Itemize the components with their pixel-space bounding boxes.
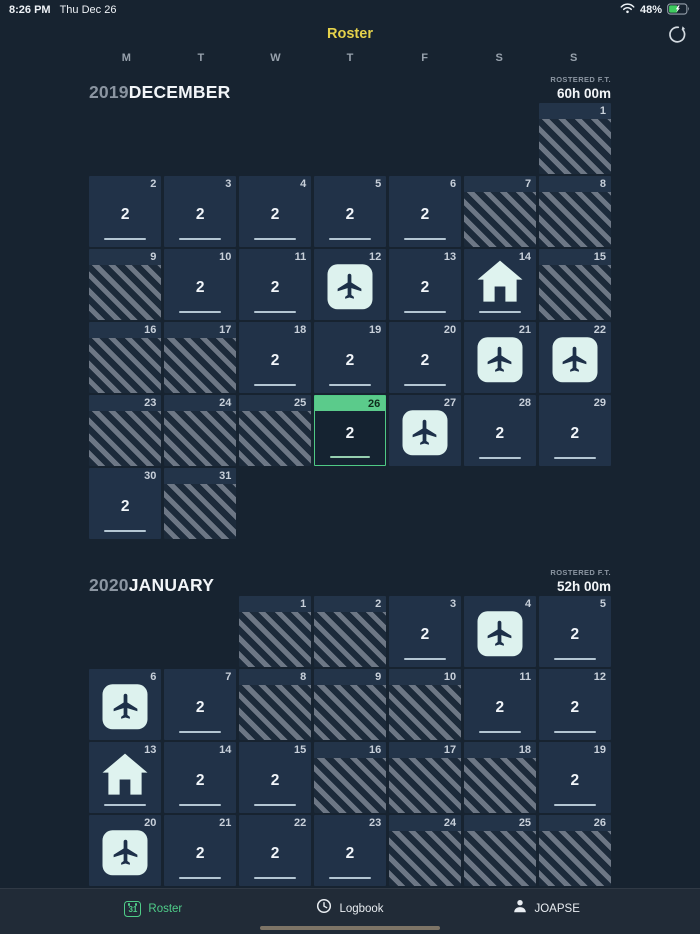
refresh-icon — [666, 23, 688, 45]
calendar-grid-january: 1232452672891011212213142152161718192202… — [89, 596, 611, 886]
day-number: 5 — [375, 178, 381, 190]
calendar-day-cell[interactable]: 20 — [89, 815, 161, 886]
day-number: 14 — [219, 744, 231, 756]
airplane-icon — [477, 611, 522, 656]
day-number: 7 — [225, 671, 231, 683]
duty-underline — [479, 731, 521, 733]
duty-underline — [104, 238, 146, 240]
calendar-day-cell[interactable]: 21 — [464, 322, 536, 393]
diagonal-stripes — [239, 411, 311, 466]
calendar-day-cell[interactable]: 1 — [539, 103, 611, 174]
calendar-day-cell[interactable]: 8 — [239, 669, 311, 740]
diagonal-stripes — [389, 831, 461, 886]
airplane-icon — [103, 684, 148, 729]
duty-underline — [179, 877, 221, 879]
day-number: 16 — [144, 324, 156, 336]
rostered-value: 52h 00m — [550, 580, 611, 594]
rostered-label: ROSTERED F.T. — [550, 569, 611, 577]
diagonal-stripes — [164, 484, 236, 539]
calendar-day-cell[interactable]: 14 — [464, 249, 536, 320]
calendar-day-cell[interactable]: 15 — [539, 249, 611, 320]
calendar-day-cell[interactable]: 24 — [389, 815, 461, 886]
day-number: 5 — [600, 598, 606, 610]
duty-underline — [479, 311, 521, 313]
duty-underline — [254, 384, 296, 386]
page-title: Roster — [0, 26, 700, 42]
day-number: 21 — [219, 817, 231, 829]
day-number: 17 — [444, 744, 456, 756]
day-number: 25 — [519, 817, 531, 829]
refresh-button[interactable] — [666, 23, 688, 45]
duty-underline — [254, 877, 296, 879]
day-number: 3 — [450, 598, 456, 610]
diagonal-stripes — [314, 612, 386, 667]
calendar-grid-december: 1223242526278910211212132141516171821922… — [89, 103, 611, 539]
day-number: 27 — [444, 397, 456, 409]
weekday-header: MTWTFSS — [89, 52, 611, 64]
diagonal-stripes — [239, 612, 311, 667]
day-number: 22 — [594, 324, 606, 336]
calendar-day-cell[interactable]: 4 — [464, 596, 536, 667]
diagonal-stripes — [464, 831, 536, 886]
duty-underline — [329, 238, 371, 240]
calendar-day-cell[interactable]: 13 — [89, 742, 161, 813]
weekday-label: T — [164, 52, 239, 64]
calendar-day-cell[interactable]: 22 — [89, 176, 161, 247]
diagonal-stripes — [539, 192, 611, 247]
day-number: 11 — [295, 251, 307, 263]
airplane-icon — [477, 337, 522, 382]
day-number: 13 — [444, 251, 456, 263]
day-number: 23 — [144, 397, 156, 409]
day-number: 23 — [369, 817, 381, 829]
day-number: 1 — [300, 598, 306, 610]
rostered-label: ROSTERED F.T. — [550, 76, 611, 84]
diagonal-stripes — [89, 411, 161, 466]
day-number: 17 — [219, 324, 231, 336]
day-number: 10 — [219, 251, 231, 263]
duty-underline — [179, 731, 221, 733]
weekday-label: W — [238, 52, 313, 64]
calendar-day-cell[interactable]: 192 — [539, 742, 611, 813]
airplane-icon — [402, 410, 447, 455]
diagonal-stripes — [539, 119, 611, 174]
diagonal-stripes — [464, 192, 536, 247]
day-number: 26 — [594, 817, 606, 829]
day-number: 1 — [600, 105, 606, 117]
weekday-label: M — [89, 52, 164, 64]
day-number: 6 — [150, 671, 156, 683]
calendar-day-cell[interactable]: 23 — [89, 395, 161, 466]
calendar-day-cell[interactable]: 22 — [539, 322, 611, 393]
airplane-icon — [552, 337, 597, 382]
calendar-day-cell[interactable]: 152 — [239, 742, 311, 813]
month-name: JANUARY — [129, 575, 214, 595]
month-year: 2020 — [89, 575, 129, 595]
duty-underline — [329, 384, 371, 386]
calendar-day-cell[interactable]: 182 — [239, 322, 311, 393]
day-number: 12 — [594, 671, 606, 683]
status-left: 8:26 PM Thu Dec 26 — [9, 4, 116, 16]
status-date: Thu Dec 26 — [60, 4, 117, 16]
day-number: 20 — [444, 324, 456, 336]
day-number: 16 — [369, 744, 381, 756]
duty-underline — [330, 456, 371, 458]
clock-icon — [316, 898, 332, 919]
calendar-day-cell[interactable]: 292 — [539, 395, 611, 466]
weekday-label: S — [462, 52, 537, 64]
status-time: 8:26 PM — [9, 4, 51, 16]
rostered-flight-time: ROSTERED F.T. 60h 00m — [550, 76, 611, 101]
calendar-day-cell[interactable]: 16 — [314, 742, 386, 813]
day-number: 11 — [519, 671, 531, 683]
day-number: 13 — [144, 744, 156, 756]
diagonal-stripes — [539, 831, 611, 886]
day-number: 8 — [600, 178, 606, 190]
status-right: 48% — [620, 3, 691, 18]
day-number: 12 — [369, 251, 381, 263]
home-icon — [102, 753, 149, 796]
duty-underline — [554, 731, 596, 733]
calendar-day-cell[interactable]: 9 — [314, 669, 386, 740]
month-title: 2020JANUARY — [89, 576, 214, 594]
month-section-january: 2020JANUARY ROSTERED F.T. 52h 00m 123245… — [89, 560, 611, 886]
calendar-day-cell[interactable]: 6 — [89, 669, 161, 740]
day-number: 14 — [519, 251, 531, 263]
day-number: 8 — [300, 671, 306, 683]
battery-icon — [667, 3, 691, 18]
calendar-day-cell[interactable]: 72 — [164, 669, 236, 740]
tab-roster[interactable]: 31 Roster — [55, 901, 252, 917]
calendar-day-cell[interactable]: 42 — [239, 176, 311, 247]
calendar-day-cell[interactable]: 26 — [539, 815, 611, 886]
duty-underline — [179, 311, 221, 313]
wifi-icon — [620, 3, 635, 17]
weekday-label: S — [536, 52, 611, 64]
calendar-day-cell[interactable]: 232 — [314, 815, 386, 886]
calendar-day-cell[interactable]: 27 — [389, 395, 461, 466]
home-icon — [476, 260, 523, 303]
duty-underline — [104, 804, 146, 806]
day-number: 15 — [594, 251, 606, 263]
calendar-day-cell[interactable]: 192 — [314, 322, 386, 393]
day-number: 7 — [525, 178, 531, 190]
calendar-day-cell[interactable]: 262 — [314, 395, 386, 466]
month-year: 2019 — [89, 82, 129, 102]
duty-underline — [554, 804, 596, 806]
battery-percent: 48% — [640, 4, 662, 16]
diagonal-stripes — [389, 758, 461, 813]
rostered-value: 60h 00m — [550, 87, 611, 101]
calendar-day-cell[interactable]: 112 — [464, 669, 536, 740]
calendar-day-cell[interactable]: 202 — [389, 322, 461, 393]
day-number: 2 — [150, 178, 156, 190]
day-number: 15 — [294, 744, 306, 756]
calendar-day-cell[interactable]: 2 — [314, 596, 386, 667]
day-number: 9 — [150, 251, 156, 263]
duty-underline — [404, 384, 446, 386]
duty-underline — [254, 238, 296, 240]
calendar-day-cell[interactable]: 282 — [464, 395, 536, 466]
day-number: 24 — [219, 397, 231, 409]
diagonal-stripes — [164, 411, 236, 466]
calendar-day-cell[interactable]: 10 — [389, 669, 461, 740]
day-number: 29 — [594, 397, 606, 409]
calendar-day-cell[interactable]: 52 — [539, 596, 611, 667]
day-number: 24 — [444, 817, 456, 829]
calendar-day-cell[interactable]: 9 — [89, 249, 161, 320]
duty-underline — [179, 238, 221, 240]
duty-underline — [554, 658, 596, 660]
day-number: 19 — [594, 744, 606, 756]
calendar-day-cell[interactable]: 62 — [389, 176, 461, 247]
day-number: 4 — [525, 598, 531, 610]
month-header: 2020JANUARY ROSTERED F.T. 52h 00m — [89, 560, 611, 594]
rostered-flight-time: ROSTERED F.T. 52h 00m — [550, 569, 611, 594]
duty-underline — [254, 804, 296, 806]
calendar-day-cell[interactable]: 212 — [164, 815, 236, 886]
calendar-day-cell[interactable]: 17 — [389, 742, 461, 813]
day-number: 3 — [225, 178, 231, 190]
calendar-day-cell[interactable]: 32 — [164, 176, 236, 247]
calendar-day-cell[interactable]: 132 — [389, 249, 461, 320]
diagonal-stripes — [464, 758, 536, 813]
tab-profile[interactable]: JOAPSE — [448, 899, 645, 918]
tab-logbook[interactable]: Logbook — [252, 898, 449, 919]
calendar-icon-number: 31 — [128, 906, 137, 916]
calendar-day-cell[interactable]: 7 — [464, 176, 536, 247]
calendar-day-cell[interactable]: 24 — [164, 395, 236, 466]
day-number: 18 — [294, 324, 306, 336]
duty-underline — [554, 457, 596, 459]
duty-underline — [404, 311, 446, 313]
diagonal-stripes — [239, 685, 311, 740]
day-number: 2 — [375, 598, 381, 610]
calendar-31-icon: 31 — [124, 901, 141, 917]
day-number: 28 — [519, 397, 531, 409]
calendar-day-cell[interactable]: 25 — [239, 395, 311, 466]
weekday-label: F — [387, 52, 462, 64]
calendar-day-cell[interactable]: 18 — [464, 742, 536, 813]
calendar-day-cell[interactable]: 142 — [164, 742, 236, 813]
month-section-december: 2019DECEMBER ROSTERED F.T. 60h 00m 12232… — [89, 67, 611, 539]
diagonal-stripes — [314, 685, 386, 740]
roster-app-screen: 8:26 PM Thu Dec 26 48% — [0, 0, 700, 934]
person-icon — [513, 899, 527, 918]
calendar-day-cell[interactable]: 52 — [314, 176, 386, 247]
duty-underline — [479, 457, 521, 459]
day-number: 26 — [368, 398, 380, 410]
day-number: 6 — [450, 178, 456, 190]
duty-underline — [179, 804, 221, 806]
weekday-label: T — [313, 52, 388, 64]
calendar-day-cell[interactable]: 25 — [464, 815, 536, 886]
day-number: 9 — [375, 671, 381, 683]
month-header: 2019DECEMBER ROSTERED F.T. 60h 00m — [89, 67, 611, 101]
diagonal-stripes — [314, 758, 386, 813]
airplane-icon — [327, 264, 372, 309]
calendar-day-cell[interactable]: 31 — [164, 468, 236, 539]
home-indicator[interactable] — [260, 926, 440, 930]
duty-underline — [329, 877, 371, 879]
diagonal-stripes — [89, 338, 161, 393]
month-title: 2019DECEMBER — [89, 83, 230, 101]
day-number: 22 — [294, 817, 306, 829]
day-number: 21 — [519, 324, 531, 336]
diagonal-stripes — [164, 338, 236, 393]
diagonal-stripes — [389, 685, 461, 740]
duty-underline — [404, 238, 446, 240]
day-number: 10 — [444, 671, 456, 683]
calendar-day-cell[interactable]: 17 — [164, 322, 236, 393]
airplane-icon — [103, 830, 148, 875]
day-number: 4 — [300, 178, 306, 190]
diagonal-stripes — [89, 265, 161, 320]
calendar-day-cell[interactable]: 102 — [164, 249, 236, 320]
day-number: 25 — [294, 397, 306, 409]
tab-label-roster: Roster — [148, 903, 182, 915]
calendar-day-cell[interactable]: 112 — [239, 249, 311, 320]
day-number: 31 — [219, 470, 231, 482]
calendar-day-cell[interactable]: 8 — [539, 176, 611, 247]
duty-underline — [104, 530, 146, 532]
day-number: 19 — [369, 324, 381, 336]
calendar-day-cell[interactable]: 122 — [539, 669, 611, 740]
duty-underline — [254, 311, 296, 313]
calendar-day-cell[interactable]: 12 — [314, 249, 386, 320]
calendar-day-cell[interactable]: 302 — [89, 468, 161, 539]
day-number: 30 — [144, 470, 156, 482]
day-number: 18 — [519, 744, 531, 756]
calendar-day-cell[interactable]: 16 — [89, 322, 161, 393]
day-number: 20 — [144, 817, 156, 829]
duty-underline — [404, 658, 446, 660]
month-name: DECEMBER — [129, 82, 231, 102]
calendar-day-cell[interactable]: 1 — [239, 596, 311, 667]
status-bar: 8:26 PM Thu Dec 26 48% — [0, 0, 700, 20]
calendar-day-cell[interactable]: 222 — [239, 815, 311, 886]
tab-label-logbook: Logbook — [339, 903, 383, 915]
diagonal-stripes — [539, 265, 611, 320]
tab-label-profile: JOAPSE — [534, 903, 579, 915]
calendar-day-cell[interactable]: 32 — [389, 596, 461, 667]
